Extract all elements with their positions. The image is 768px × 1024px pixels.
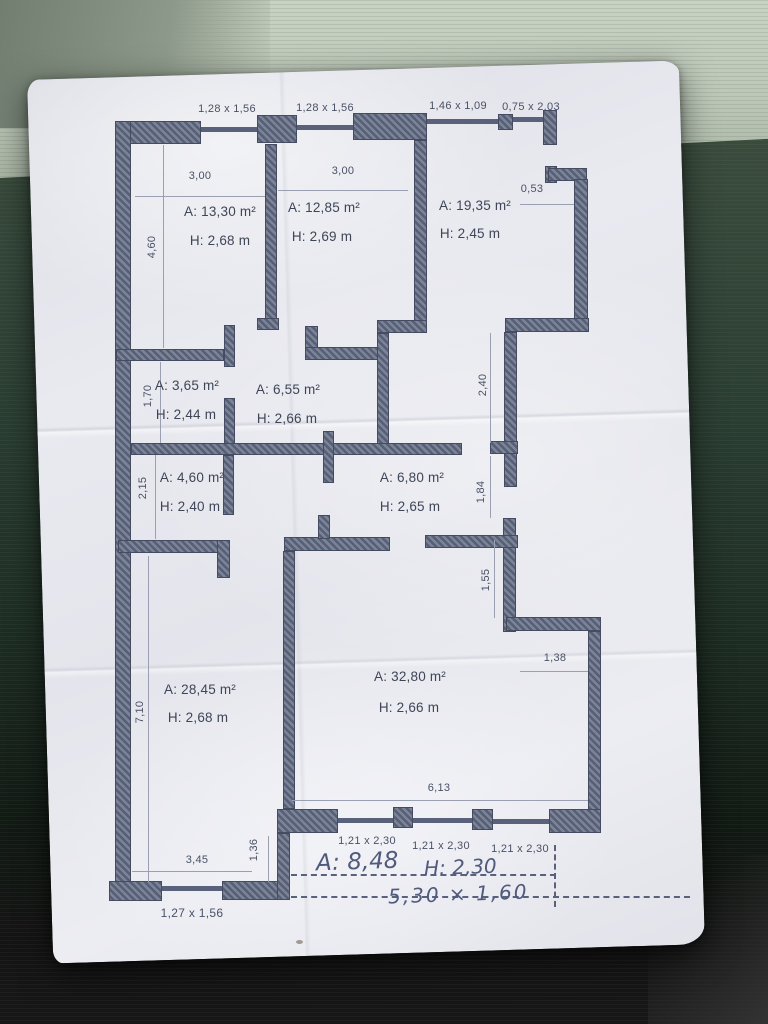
wall-segment	[257, 115, 297, 143]
door-line	[513, 117, 543, 122]
top-opening-label: 0,75 x 2,03	[502, 101, 560, 113]
wall-segment	[305, 347, 388, 360]
door-line	[413, 818, 472, 823]
balcony-dashed-line	[554, 845, 556, 907]
wall-segment	[425, 535, 518, 548]
room-area-label: A: 12,85 m²	[288, 200, 360, 215]
dim-line	[292, 800, 588, 801]
dim-line	[160, 362, 161, 443]
wall-segment	[109, 881, 162, 901]
top-opening-label: 1,28 x 1,56	[198, 103, 256, 115]
room-height-label: H: 2,69 m	[292, 229, 352, 244]
dim-line	[268, 836, 269, 882]
wall-segment	[490, 441, 518, 454]
dim-label: 1,84	[475, 481, 487, 504]
wall-segment	[543, 110, 557, 145]
wall-segment	[377, 320, 427, 333]
top-opening-label: 1,46 x 1,09	[429, 100, 487, 112]
wall-segment	[224, 398, 235, 445]
room-area-label: A: 6,80 m²	[380, 470, 444, 485]
window-line	[427, 119, 498, 124]
wall-segment	[472, 809, 493, 830]
dim-line	[520, 671, 588, 672]
wall-segment	[116, 349, 224, 361]
wall-segment	[277, 833, 290, 900]
room-area-label: A: 13,30 m²	[184, 204, 256, 219]
wall-segment	[549, 809, 601, 833]
dim-label: 2,40	[477, 374, 489, 397]
wall-segment	[277, 809, 338, 833]
wall-segment	[393, 807, 413, 828]
dim-label: 1,38	[544, 652, 567, 664]
dim-label: 1,36	[248, 839, 260, 862]
top-opening-label: 1,28 x 1,56	[296, 102, 354, 114]
wall-segment	[223, 455, 234, 515]
handwritten-area-note: A: 8,48	[316, 848, 399, 877]
wall-segment	[506, 617, 601, 631]
wall-segment	[115, 121, 131, 900]
bottom-window-label: 1,27 x 1,56	[161, 906, 224, 920]
dim-label: 4,60	[146, 236, 158, 259]
wall-segment	[498, 114, 513, 130]
dim-label: 6,13	[428, 782, 451, 794]
dim-line	[490, 333, 491, 443]
floor-plan-drawing: 1,28 x 1,56 1,28 x 1,56 1,46 x 1,09 0,75…	[0, 0, 768, 1024]
room-height-label: H: 2,40 m	[160, 499, 220, 514]
window-line	[162, 886, 222, 891]
wall-segment	[377, 333, 389, 444]
dim-line	[278, 190, 408, 191]
room-height-label: H: 2,68 m	[168, 710, 228, 725]
room-area-label: A: 32,80 m²	[374, 669, 446, 684]
wall-segment	[588, 631, 601, 833]
room-height-label: H: 2,66 m	[257, 411, 317, 426]
handwritten-size-note: 5,30 × 1,60	[388, 880, 529, 909]
dim-line	[132, 871, 252, 872]
wall-segment	[414, 140, 427, 325]
dim-line	[520, 204, 574, 205]
wall-segment	[217, 540, 230, 578]
window-line	[201, 127, 257, 132]
dim-label: 1,55	[480, 569, 492, 592]
dim-line	[135, 196, 265, 197]
wall-segment	[323, 431, 334, 483]
bottom-opening-label: 1,21 x 2,30	[412, 840, 470, 852]
room-height-label: H: 2,44 m	[156, 407, 216, 422]
handwritten-height-note: H: 2,30	[424, 854, 497, 881]
room-height-label: H: 2,68 m	[190, 233, 250, 248]
wall-segment	[284, 537, 390, 551]
dim-label: 3,45	[186, 854, 209, 866]
room-area-label: A: 3,65 m²	[155, 378, 219, 393]
wall-segment	[504, 332, 517, 487]
dim-line	[163, 145, 164, 348]
room-height-label: H: 2,65 m	[380, 499, 440, 514]
wall-segment	[131, 443, 462, 455]
dim-label: 2,15	[137, 477, 149, 500]
bottom-opening-label: 1,21 x 2,30	[338, 835, 396, 847]
dim-line	[155, 455, 156, 539]
wall-segment	[118, 540, 218, 553]
window-line	[297, 125, 353, 130]
dim-label: 1,70	[142, 385, 154, 408]
wall-segment	[257, 318, 279, 330]
wall-segment	[574, 179, 588, 332]
dim-label: 3,00	[332, 165, 355, 177]
room-area-label: A: 4,60 m²	[160, 470, 224, 485]
door-line	[493, 819, 549, 824]
wall-segment	[353, 113, 427, 140]
dim-line	[490, 456, 491, 518]
room-area-label: A: 19,35 m²	[439, 198, 511, 213]
room-area-label: A: 28,45 m²	[164, 682, 236, 697]
wall-segment	[505, 318, 589, 332]
dim-line	[148, 556, 149, 882]
room-area-label: A: 6,55 m²	[256, 382, 320, 397]
dim-line	[494, 540, 495, 618]
dim-label: 0,53	[521, 183, 544, 195]
bottom-opening-label: 1,21 x 2,30	[491, 843, 549, 855]
room-height-label: H: 2,66 m	[379, 700, 439, 715]
wall-segment	[283, 551, 295, 809]
room-height-label: H: 2,45 m	[440, 226, 500, 241]
door-line	[338, 818, 393, 823]
dim-label: 7,10	[134, 701, 146, 724]
wall-segment	[265, 144, 277, 324]
wall-segment	[224, 325, 235, 367]
wall-segment	[318, 515, 330, 539]
dim-label: 3,00	[189, 170, 212, 182]
photo-of-floor-plan: 1,28 x 1,56 1,28 x 1,56 1,46 x 1,09 0,75…	[0, 0, 768, 1024]
